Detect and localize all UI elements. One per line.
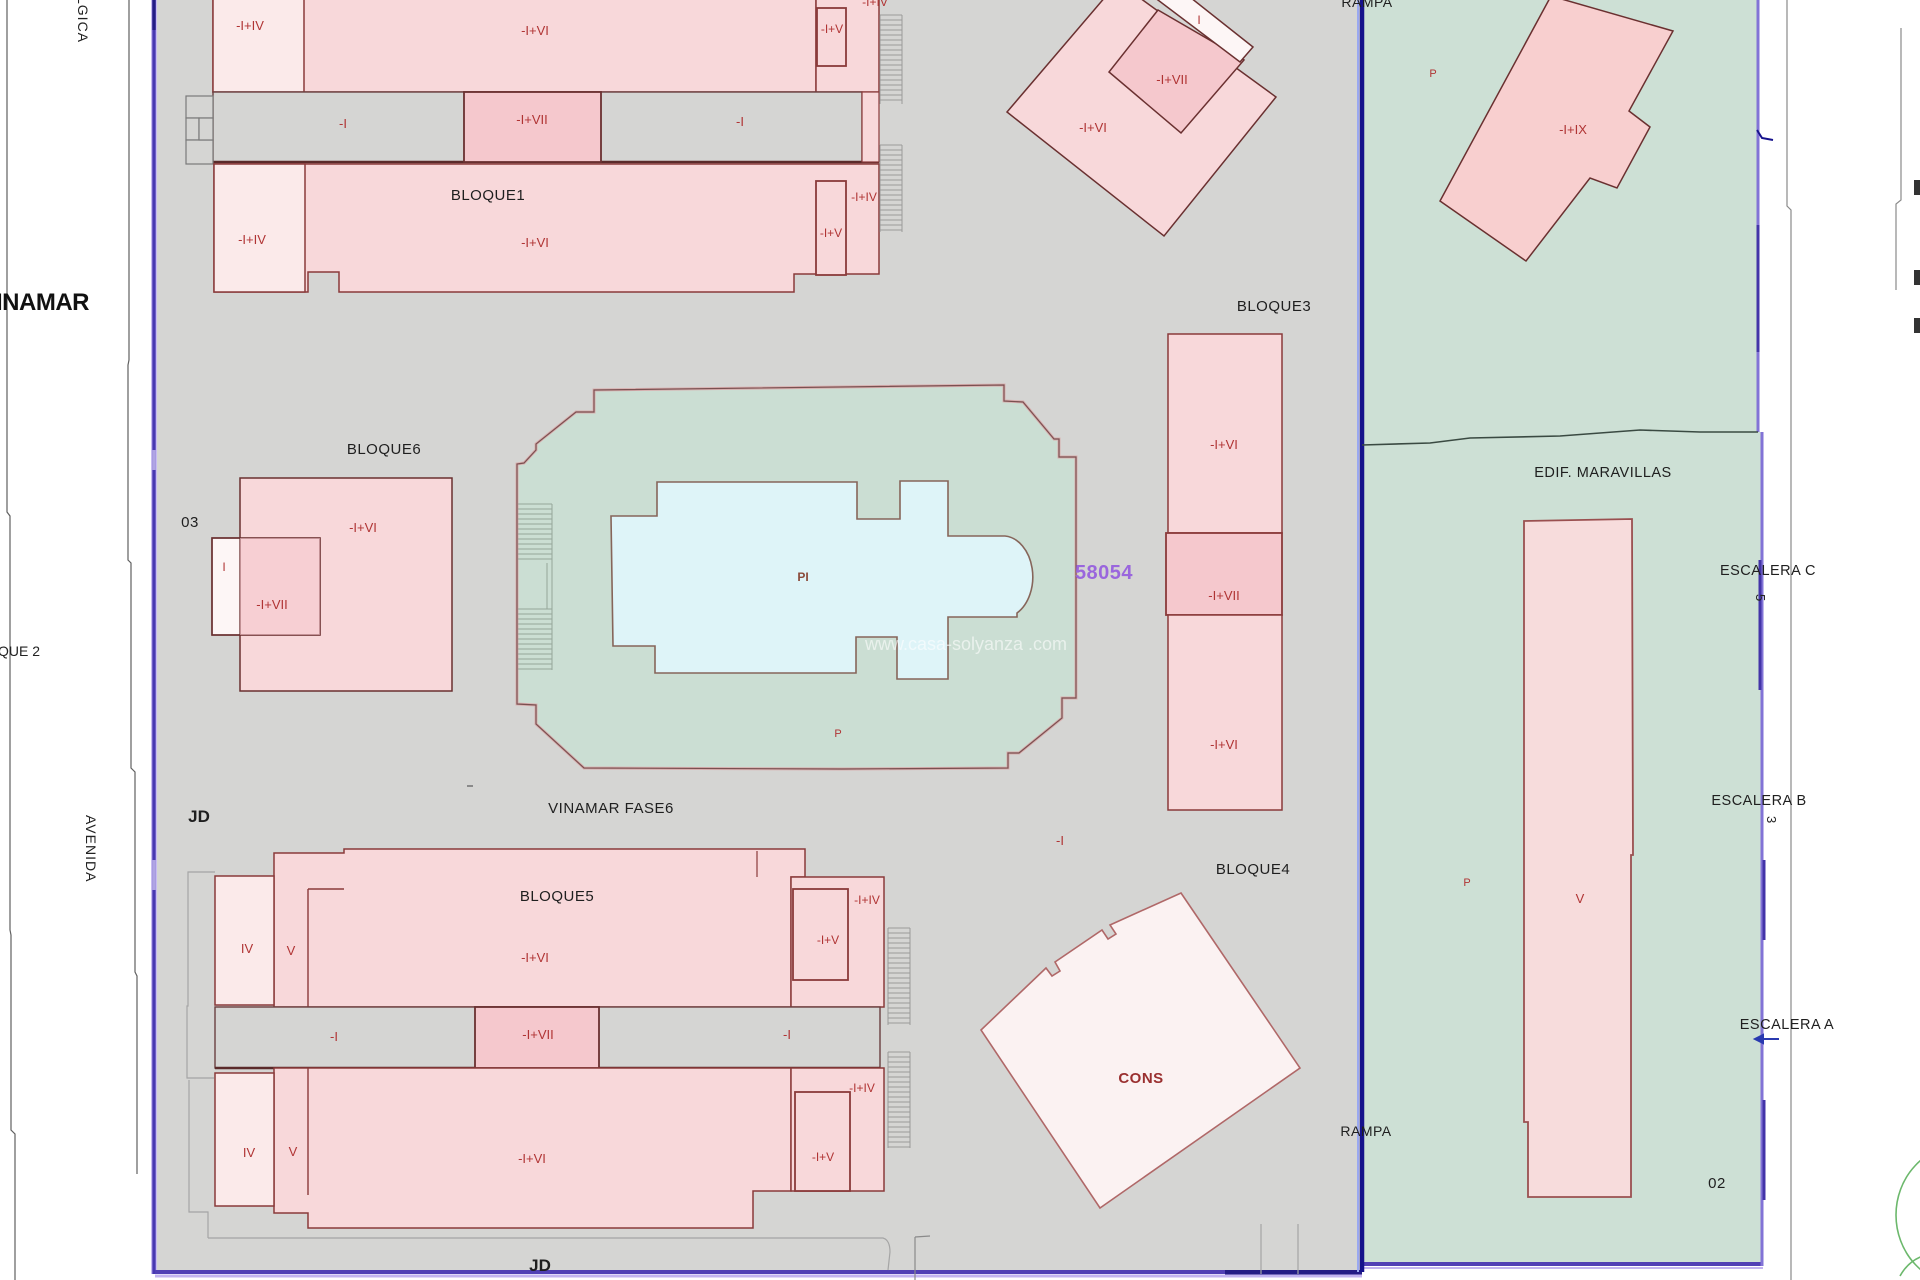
svg-text:www.casa-solyanza .com: www.casa-solyanza .com xyxy=(864,634,1067,654)
svg-text:-I+VI: -I+VI xyxy=(1210,437,1238,452)
svg-text:I: I xyxy=(222,560,225,574)
svg-text:-I+VII: -I+VII xyxy=(1208,588,1239,603)
svg-text:03: 03 xyxy=(181,514,199,531)
svg-text:-I+VI: -I+VI xyxy=(521,23,549,38)
svg-text:BLOQUE1: BLOQUE1 xyxy=(451,187,525,204)
svg-text:PI: PI xyxy=(797,570,808,584)
svg-text:ESCALERA B: ESCALERA B xyxy=(1711,793,1806,809)
svg-text:BLOQUE6: BLOQUE6 xyxy=(347,441,421,458)
svg-text:-I+VII: -I+VII xyxy=(522,1027,553,1042)
svg-text:EDIF. MARAVILLAS: EDIF. MARAVILLAS xyxy=(1534,465,1671,481)
svg-text:-I+VI: -I+VI xyxy=(518,1151,546,1166)
svg-text:-I+VII: -I+VII xyxy=(1156,72,1187,87)
svg-text:-I+V: -I+V xyxy=(817,933,839,947)
svg-text:P: P xyxy=(1463,877,1470,889)
svg-text:02: 02 xyxy=(1708,1175,1726,1192)
svg-text:I: I xyxy=(1197,13,1200,27)
svg-text:3: 3 xyxy=(1764,816,1779,823)
svg-text:-I+VII: -I+VII xyxy=(516,112,547,127)
svg-text:V: V xyxy=(289,1144,298,1159)
svg-text:-I+IV: -I+IV xyxy=(238,232,266,247)
svg-text:-I+IX: -I+IX xyxy=(1559,122,1587,137)
svg-text:-I+V: -I+V xyxy=(812,1150,834,1164)
svg-text:-I+VI: -I+VI xyxy=(521,950,549,965)
svg-text:LGICA: LGICA xyxy=(75,0,91,43)
svg-text:BLOQUE5: BLOQUE5 xyxy=(520,888,594,905)
svg-text:ESCALERA C: ESCALERA C xyxy=(1720,563,1816,579)
svg-text:-I+IV: -I+IV xyxy=(236,18,264,33)
svg-text:RAMPA: RAMPA xyxy=(1341,0,1392,10)
svg-text:-I: -I xyxy=(1056,833,1064,848)
svg-text:-I+VI: -I+VI xyxy=(1210,737,1238,752)
svg-text:-I+IV: -I+IV xyxy=(851,190,877,204)
svg-text:CONS: CONS xyxy=(1118,1070,1163,1087)
svg-text:INAMAR: INAMAR xyxy=(0,289,89,316)
svg-text:-I+VI: -I+VI xyxy=(521,235,549,250)
svg-text:JD: JD xyxy=(188,807,210,826)
svg-text:58054: 58054 xyxy=(1075,562,1133,584)
svg-text:-I+VII: -I+VII xyxy=(256,597,287,612)
svg-text:RAMPA: RAMPA xyxy=(1340,1123,1391,1139)
svg-text:-I+IV: -I+IV xyxy=(854,893,880,907)
svg-text:V: V xyxy=(287,943,296,958)
svg-text:JD: JD xyxy=(529,1256,551,1275)
svg-text:VINAMAR FASE6: VINAMAR FASE6 xyxy=(548,800,674,817)
svg-text:P: P xyxy=(834,728,841,740)
svg-text:AVENIDA: AVENIDA xyxy=(83,815,99,882)
svg-text:-I: -I xyxy=(736,114,744,129)
svg-text:BLOQUE4: BLOQUE4 xyxy=(1216,861,1290,878)
svg-text:IV: IV xyxy=(241,941,254,956)
svg-text:-I: -I xyxy=(330,1029,338,1044)
svg-text:IV: IV xyxy=(243,1145,256,1160)
svg-text:-I: -I xyxy=(783,1027,791,1042)
svg-text:P: P xyxy=(1429,68,1436,80)
svg-text:-I+V: -I+V xyxy=(821,22,843,36)
svg-text:-I+VI: -I+VI xyxy=(1079,120,1107,135)
svg-text:5: 5 xyxy=(1753,594,1768,601)
svg-text:-I: -I xyxy=(339,116,347,131)
svg-text:-I+VI: -I+VI xyxy=(349,520,377,535)
svg-text:V: V xyxy=(1576,891,1585,906)
svg-text:BLOQUE3: BLOQUE3 xyxy=(1237,298,1311,315)
svg-text:ESCALERA A: ESCALERA A xyxy=(1740,1017,1834,1033)
svg-text:-I+IV: -I+IV xyxy=(862,0,888,9)
svg-text:-I+V: -I+V xyxy=(820,226,842,240)
svg-text:-I+IV: -I+IV xyxy=(849,1081,875,1095)
svg-text:QUE 2: QUE 2 xyxy=(0,643,40,659)
